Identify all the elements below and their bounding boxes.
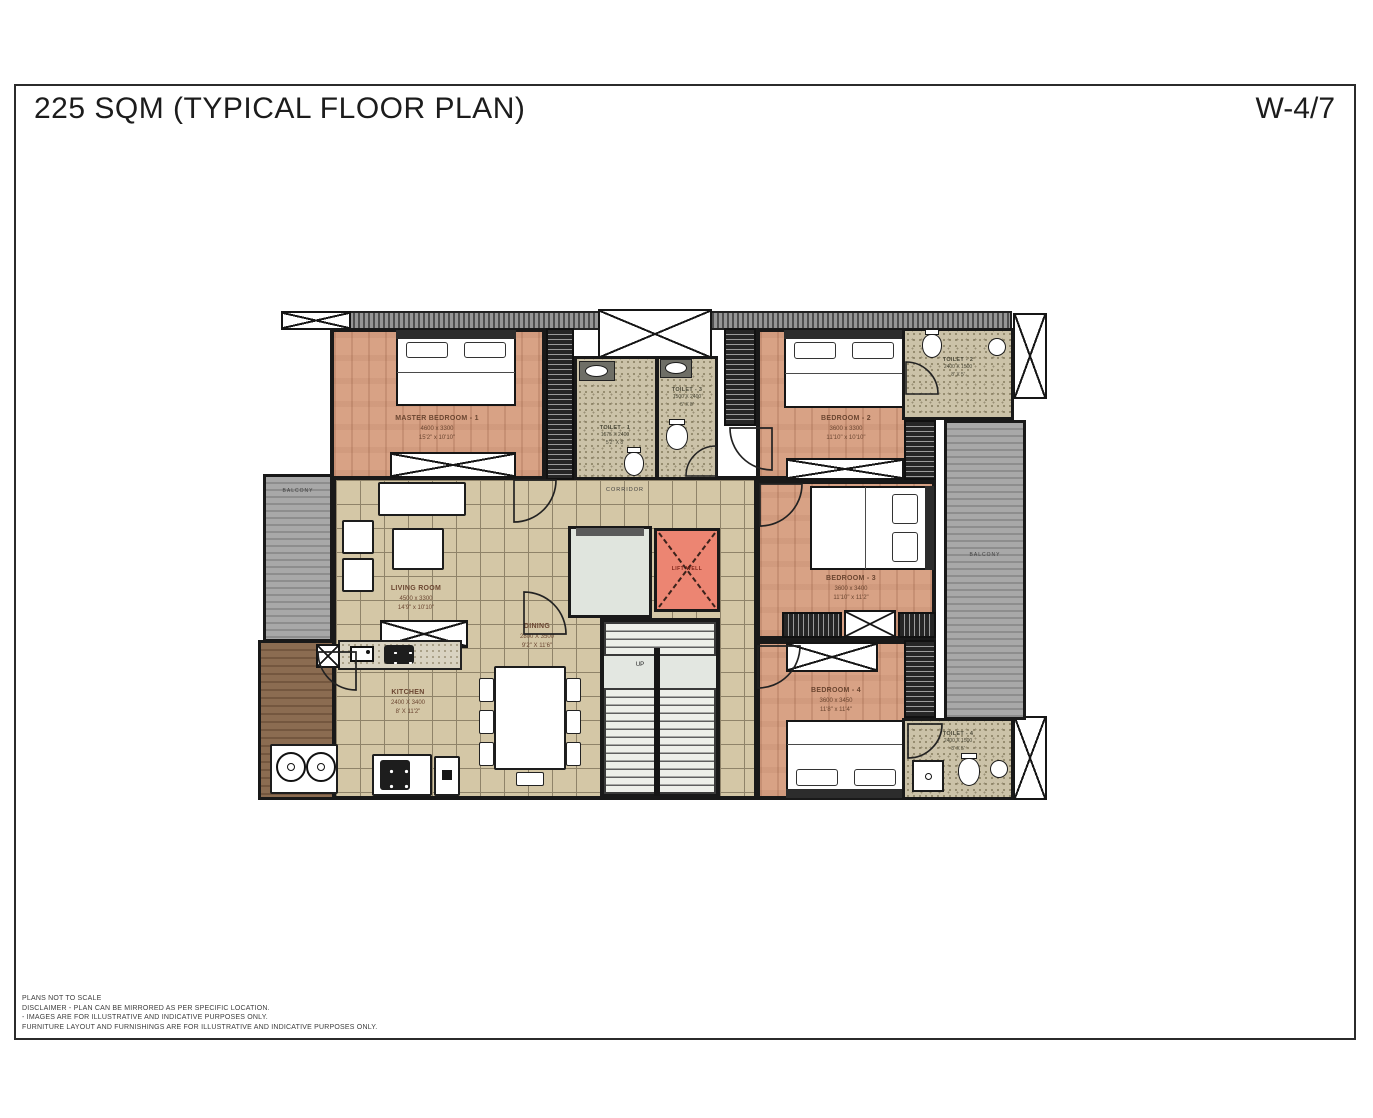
disclaimer-line: FURNITURE LAYOUT AND FURNISHINGS ARE FOR…: [22, 1023, 377, 1033]
wc-icon: [958, 758, 980, 786]
washing-machine-icon: [276, 752, 306, 782]
pillow-icon: [854, 769, 895, 786]
stair-treads-lower: [604, 688, 716, 794]
bed-headboard: [925, 486, 934, 570]
dining-chair: [566, 710, 581, 734]
coffee-table: [392, 528, 444, 570]
door-arc: [524, 592, 566, 634]
washbasin-icon: [665, 362, 687, 374]
pillow-icon: [852, 342, 893, 359]
stair-treads-upper: [604, 622, 716, 656]
dining-chair: [479, 742, 494, 766]
wc-icon: [666, 424, 688, 450]
floor-plan-sheet: 225 SQM (TYPICAL FLOOR PLAN) W-4/7 BALCO…: [0, 0, 1373, 1118]
bedroom-4-bed: [786, 720, 906, 798]
door-arc: [686, 446, 716, 476]
disclaimer-line: PLANS NOT TO SCALE: [22, 994, 377, 1004]
dining-chair: [516, 772, 544, 786]
door-arc: [908, 724, 942, 758]
armchair: [342, 520, 374, 554]
door-arc: [758, 646, 800, 688]
hob-icon: [384, 645, 414, 664]
disclaimer-block: PLANS NOT TO SCALE DISCLAIMER - PLAN CAN…: [22, 994, 377, 1032]
appliance-knob: [442, 770, 452, 780]
door-arc: [730, 428, 772, 470]
dining-table: [494, 666, 566, 770]
disclaimer-line: DISCLAIMER - PLAN CAN BE MIRRORED AS PER…: [22, 1004, 377, 1014]
dresser-master-bedroom: [390, 452, 516, 478]
stove-icon: [380, 760, 410, 790]
duct-box-right-bottom: [1013, 716, 1047, 800]
door-arc: [906, 362, 938, 394]
washer-drum: [317, 763, 325, 771]
pillow-icon: [464, 342, 505, 358]
bed-sheet-line: [785, 373, 903, 374]
bed-headboard: [786, 789, 906, 798]
wardrobe-bedroom-3-left: [782, 612, 842, 638]
washing-machine-icon: [306, 752, 336, 782]
wc-tank: [669, 419, 685, 425]
bedroom-3-bed: [810, 486, 934, 570]
bed-sheet-line: [397, 372, 515, 373]
disclaimer-line: - IMAGES ARE FOR ILLUSTRATIVE AND INDICA…: [22, 1013, 377, 1023]
washbasin-icon: [990, 760, 1008, 778]
wc-tank: [627, 447, 641, 453]
wardrobe-bedroom-3-right: [898, 612, 936, 638]
pillow-icon: [406, 342, 447, 358]
pillow-icon: [892, 494, 918, 523]
pillow-icon: [794, 342, 835, 359]
dresser-bedroom-2: [786, 458, 904, 480]
bed-headboard: [784, 330, 904, 339]
washbasin-icon: [585, 365, 608, 377]
dining-chair: [479, 710, 494, 734]
bed-sheet-line: [865, 487, 866, 569]
dining-chair: [566, 678, 581, 702]
shower-tray-icon: [912, 760, 944, 792]
wardrobe-bedroom-2: [724, 328, 756, 426]
washbasin-icon: [988, 338, 1006, 356]
wardrobe-bedroom-4: [904, 640, 936, 718]
lift-well: [654, 528, 720, 612]
balcony-right: [944, 420, 1026, 720]
door-arc: [760, 484, 802, 526]
bed-headboard: [396, 330, 516, 339]
pillow-icon: [796, 769, 837, 786]
dining-chair: [566, 742, 581, 766]
armchair: [342, 558, 374, 592]
wc-tank: [961, 753, 977, 759]
plan-canvas: BALCONY BALCONY CORRIDOR MASTER BEDROOM …: [0, 0, 1373, 1118]
wardrobe-master-bedroom: [546, 328, 574, 480]
open-well-top-middle: [598, 309, 712, 359]
lift-door-frame: [576, 528, 644, 536]
bedroom-2-bed: [784, 330, 904, 408]
lift-cross-icon: [657, 531, 717, 609]
bed-sheet-line: [787, 744, 905, 745]
sofa: [378, 482, 466, 516]
duct-box-right-top: [1013, 313, 1047, 399]
washer-drum: [287, 763, 295, 771]
wc-icon: [624, 452, 644, 476]
door-arc: [514, 480, 556, 522]
wardrobe-bedroom-2-right: [904, 420, 936, 480]
pillow-icon: [892, 532, 918, 561]
wc-icon: [922, 334, 942, 358]
balcony-left: [263, 474, 333, 642]
master-bed: [396, 330, 516, 406]
dining-chair: [479, 678, 494, 702]
lift-lobby: [568, 526, 652, 618]
dresser-bedroom-3: [844, 610, 896, 638]
faucet-dot: [366, 650, 370, 654]
stair-divider-wall: [654, 648, 660, 796]
shower-drain: [925, 773, 932, 780]
wc-tank: [925, 329, 939, 335]
door-arc: [318, 652, 356, 690]
